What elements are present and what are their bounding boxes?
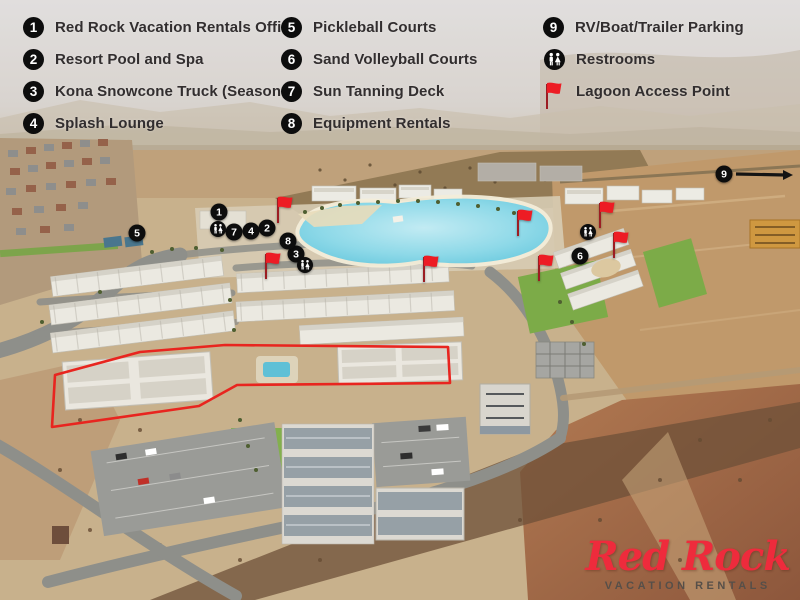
- restrooms-icon: [543, 49, 565, 70]
- legend-item-label: Equipment Rentals: [313, 115, 451, 132]
- legend-number-badge: 7: [281, 81, 302, 102]
- legend-number-badge: 2: [23, 49, 44, 70]
- flag-icon: [543, 81, 565, 111]
- legend: 1Red Rock Vacation Rentals Office2Resort…: [0, 0, 800, 600]
- legend-item: 3Kona Snowcone Truck (Seasonal): [23, 80, 299, 102]
- legend-item-label: Resort Pool and Spa: [55, 51, 204, 68]
- legend-item: 5Pickleball Courts: [281, 16, 477, 38]
- legend-column-1: 1Red Rock Vacation Rentals Office2Resort…: [23, 16, 299, 134]
- logo-wordmark: Red Rock: [585, 537, 790, 577]
- legend-item-label: Red Rock Vacation Rentals Office: [55, 19, 298, 36]
- legend-column-3: 9RV/Boat/Trailer Parking Restrooms Lagoo…: [543, 16, 744, 102]
- legend-item: 2Resort Pool and Spa: [23, 48, 299, 70]
- legend-item: 8Equipment Rentals: [281, 112, 477, 134]
- legend-item: 7Sun Tanning Deck: [281, 80, 477, 102]
- legend-item-label: Sand Volleyball Courts: [313, 51, 477, 68]
- legend-number-badge: 4: [23, 113, 44, 134]
- legend-number-badge: 3: [23, 81, 44, 102]
- legend-number-badge: 9: [543, 17, 564, 38]
- legend-item: 6Sand Volleyball Courts: [281, 48, 477, 70]
- logo-subtitle: VACATION RENTALS: [585, 580, 790, 592]
- resort-aerial-map: 123456789: [0, 0, 800, 600]
- legend-item: Lagoon Access Point: [543, 80, 744, 102]
- legend-item-label: Lagoon Access Point: [576, 83, 730, 100]
- legend-item: 1Red Rock Vacation Rentals Office: [23, 16, 299, 38]
- legend-number-badge: 5: [281, 17, 302, 38]
- legend-item-label: Restrooms: [576, 51, 655, 68]
- legend-column-2: 5Pickleball Courts6Sand Volleyball Court…: [281, 16, 477, 134]
- legend-item: Restrooms: [543, 48, 744, 70]
- logo: Red Rock VACATION RENTALS: [585, 537, 790, 592]
- legend-item: 4Splash Lounge: [23, 112, 299, 134]
- legend-number-badge: 6: [281, 49, 302, 70]
- legend-item-label: RV/Boat/Trailer Parking: [575, 19, 744, 36]
- legend-item-label: Sun Tanning Deck: [313, 83, 444, 100]
- legend-item-label: Splash Lounge: [55, 115, 164, 132]
- legend-number-badge: 1: [23, 17, 44, 38]
- legend-item-label: Kona Snowcone Truck (Seasonal): [55, 83, 299, 100]
- legend-number-badge: 8: [281, 113, 302, 134]
- legend-item: 9RV/Boat/Trailer Parking: [543, 16, 744, 38]
- legend-item-label: Pickleball Courts: [313, 19, 436, 36]
